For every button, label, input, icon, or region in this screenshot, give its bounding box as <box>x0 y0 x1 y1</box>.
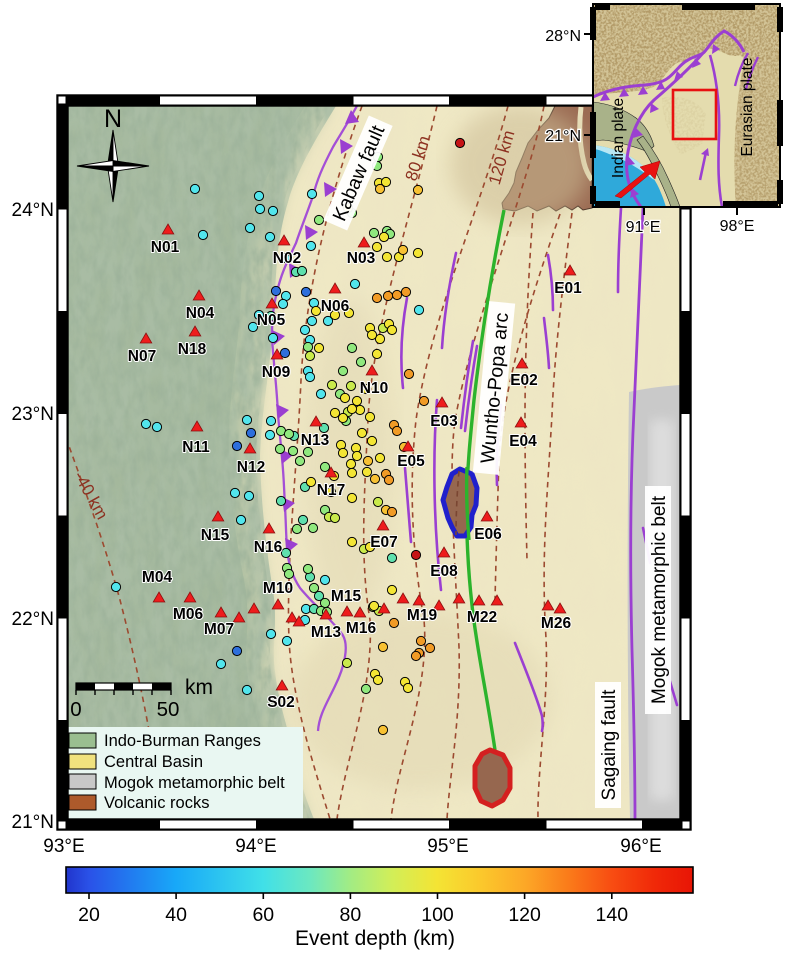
svg-text:24°N: 24°N <box>12 200 54 221</box>
svg-text:E01: E01 <box>554 280 582 297</box>
svg-text:50: 50 <box>157 698 180 721</box>
svg-text:N07: N07 <box>128 348 156 365</box>
svg-text:23°N: 23°N <box>12 404 54 425</box>
svg-text:94°E: 94°E <box>235 836 276 857</box>
svg-text:E08: E08 <box>430 563 458 580</box>
svg-text:93°E: 93°E <box>43 836 84 857</box>
svg-text:Mogok metamorphic belt: Mogok metamorphic belt <box>104 774 285 792</box>
svg-text:M07: M07 <box>204 621 234 638</box>
svg-text:95°E: 95°E <box>427 836 468 857</box>
svg-text:80: 80 <box>340 904 362 926</box>
svg-text:N03: N03 <box>347 250 376 267</box>
svg-text:N10: N10 <box>360 380 388 397</box>
svg-text:28°N: 28°N <box>545 28 581 45</box>
svg-text:N11: N11 <box>182 439 210 456</box>
svg-text:Mogok metamorphic belt: Mogok metamorphic belt <box>649 495 670 704</box>
svg-text:E06: E06 <box>474 526 502 543</box>
svg-text:60: 60 <box>252 904 274 926</box>
svg-text:N17: N17 <box>317 482 345 499</box>
svg-text:N04: N04 <box>186 305 215 322</box>
svg-text:N05: N05 <box>257 312 286 329</box>
svg-text:91°E: 91°E <box>626 219 661 236</box>
svg-text:N09: N09 <box>262 364 291 381</box>
svg-text:21°N: 21°N <box>12 812 54 833</box>
svg-text:E04: E04 <box>509 433 537 450</box>
svg-text:N18: N18 <box>178 341 207 358</box>
svg-text:km: km <box>185 676 213 699</box>
svg-text:E03: E03 <box>430 413 458 430</box>
svg-text:N16: N16 <box>254 539 283 556</box>
svg-text:M22: M22 <box>467 609 497 626</box>
svg-text:N12: N12 <box>237 459 265 476</box>
svg-text:M04: M04 <box>142 569 173 586</box>
svg-text:Indo-Burman Ranges: Indo-Burman Ranges <box>104 732 261 750</box>
svg-text:N: N <box>104 105 122 133</box>
svg-text:Event depth (km): Event depth (km) <box>295 927 455 950</box>
svg-text:Eurasian plate: Eurasian plate <box>739 57 756 156</box>
svg-text:E02: E02 <box>510 372 538 389</box>
svg-text:Central Basin: Central Basin <box>104 753 203 771</box>
svg-text:22°N: 22°N <box>12 609 54 630</box>
svg-text:Indian plate: Indian plate <box>610 98 627 178</box>
svg-text:N15: N15 <box>201 527 230 544</box>
svg-text:N02: N02 <box>273 250 301 267</box>
svg-text:140: 140 <box>596 904 629 926</box>
svg-text:M26: M26 <box>541 615 572 632</box>
svg-text:E07: E07 <box>370 534 398 551</box>
svg-text:120: 120 <box>508 904 541 926</box>
svg-text:20: 20 <box>78 904 100 926</box>
svg-text:S02: S02 <box>267 694 295 711</box>
svg-text:M19: M19 <box>407 607 438 624</box>
svg-text:M15: M15 <box>331 588 362 605</box>
svg-text:96°E: 96°E <box>620 836 661 857</box>
svg-text:M13: M13 <box>311 624 342 641</box>
svg-text:N13: N13 <box>301 432 330 449</box>
svg-text:0: 0 <box>70 698 81 721</box>
svg-text:E05: E05 <box>397 453 425 470</box>
svg-text:N01: N01 <box>151 239 180 256</box>
svg-text:Volcanic rocks: Volcanic rocks <box>104 794 209 812</box>
svg-text:Sagaing fault: Sagaing fault <box>599 689 620 801</box>
svg-text:100: 100 <box>421 904 454 926</box>
svg-text:98°E: 98°E <box>720 218 755 235</box>
svg-text:40: 40 <box>165 904 187 926</box>
svg-text:M16: M16 <box>346 620 377 637</box>
svg-text:M10: M10 <box>263 580 293 597</box>
svg-text:N06: N06 <box>321 298 350 315</box>
svg-text:M06: M06 <box>173 606 204 623</box>
svg-text:21°N: 21°N <box>545 128 581 145</box>
